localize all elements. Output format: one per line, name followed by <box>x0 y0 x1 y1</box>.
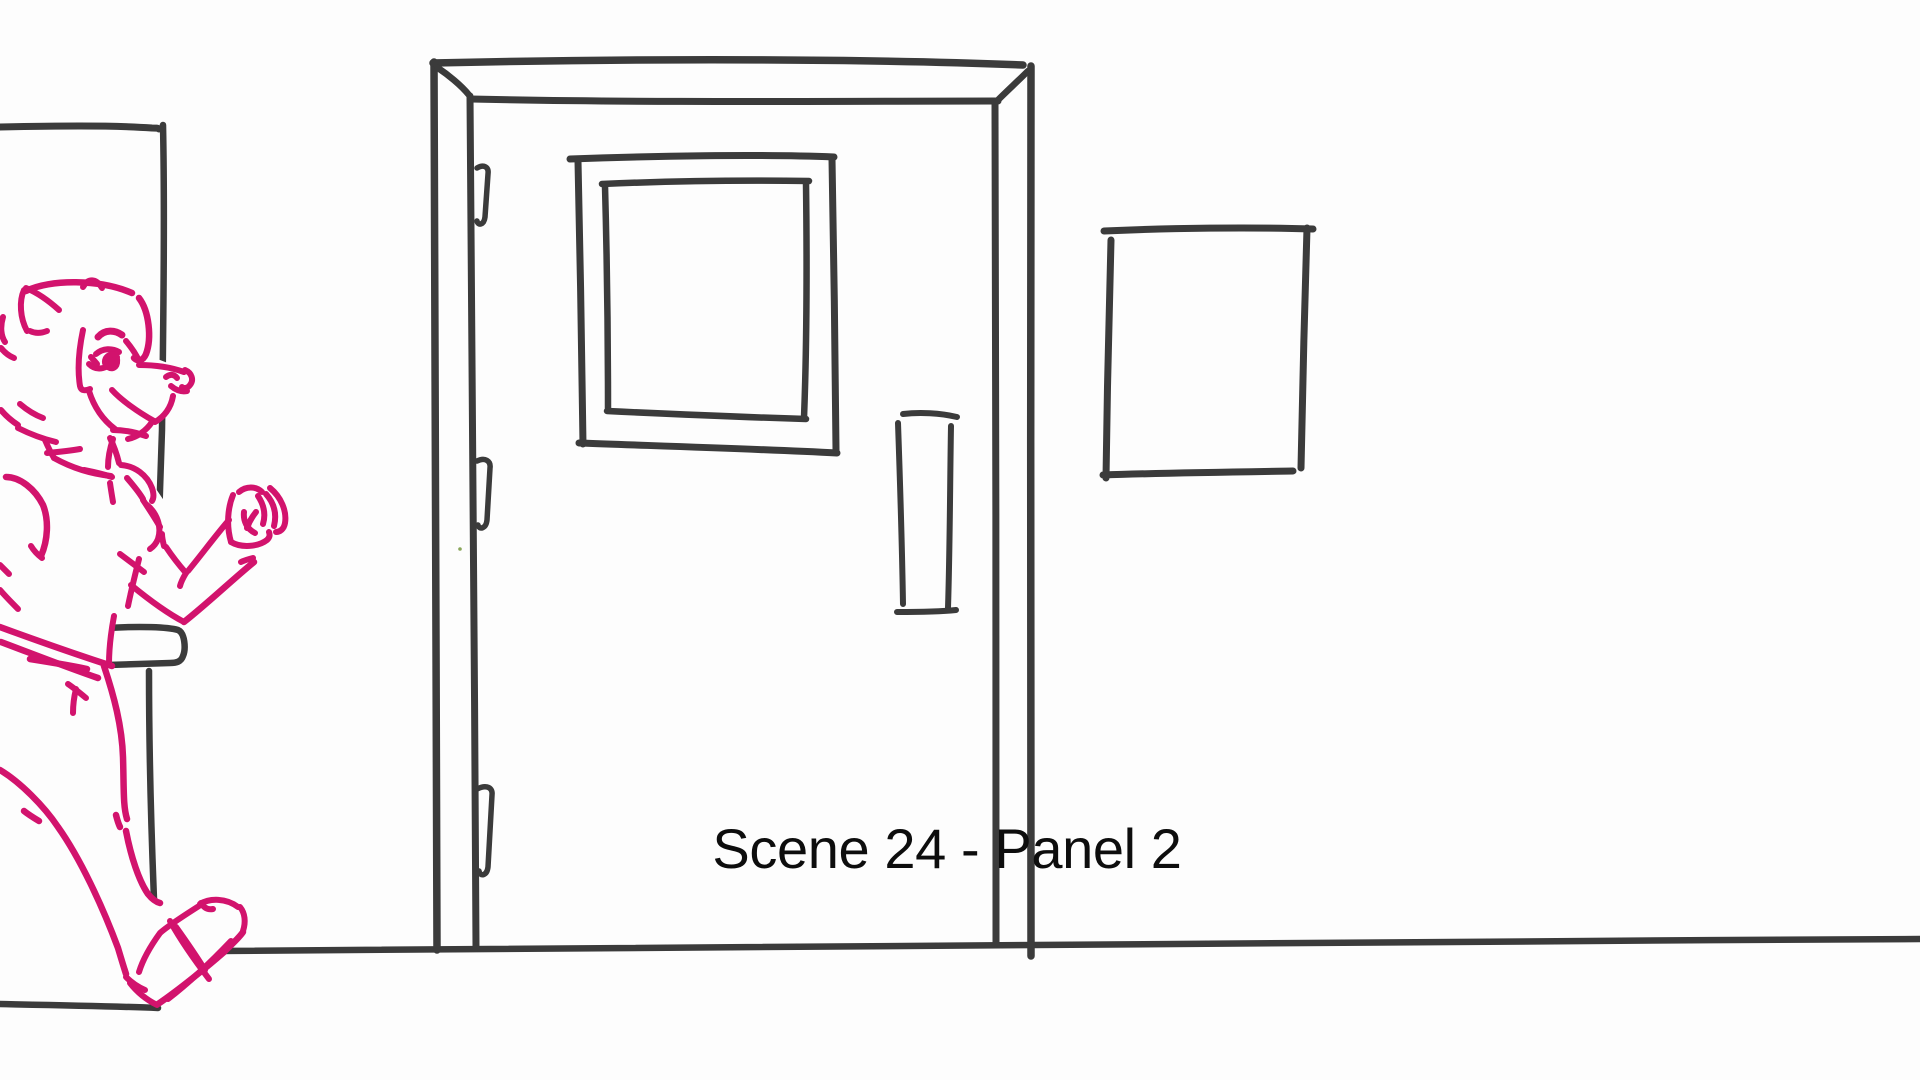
svg-text:Scene 24 - Panel 2: Scene 24 - Panel 2 <box>712 817 1181 880</box>
